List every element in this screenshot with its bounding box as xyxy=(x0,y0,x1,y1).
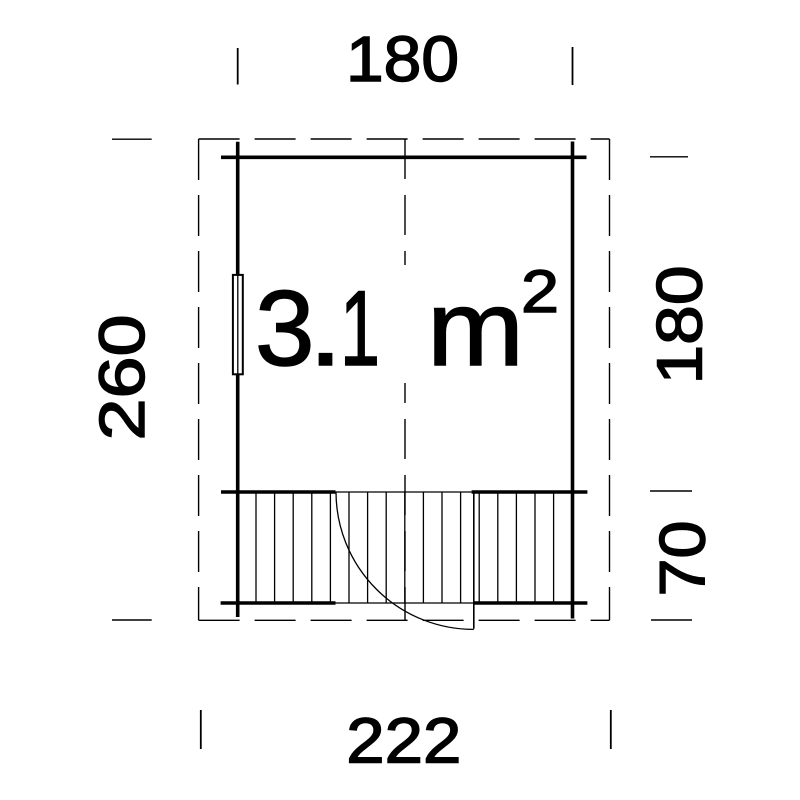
svg-text:2: 2 xyxy=(521,258,559,325)
svg-text:260: 260 xyxy=(86,315,158,441)
svg-text:70: 70 xyxy=(647,521,719,597)
svg-text:180: 180 xyxy=(346,23,459,95)
svg-text:222: 222 xyxy=(346,705,461,777)
svg-text:180: 180 xyxy=(644,266,716,385)
